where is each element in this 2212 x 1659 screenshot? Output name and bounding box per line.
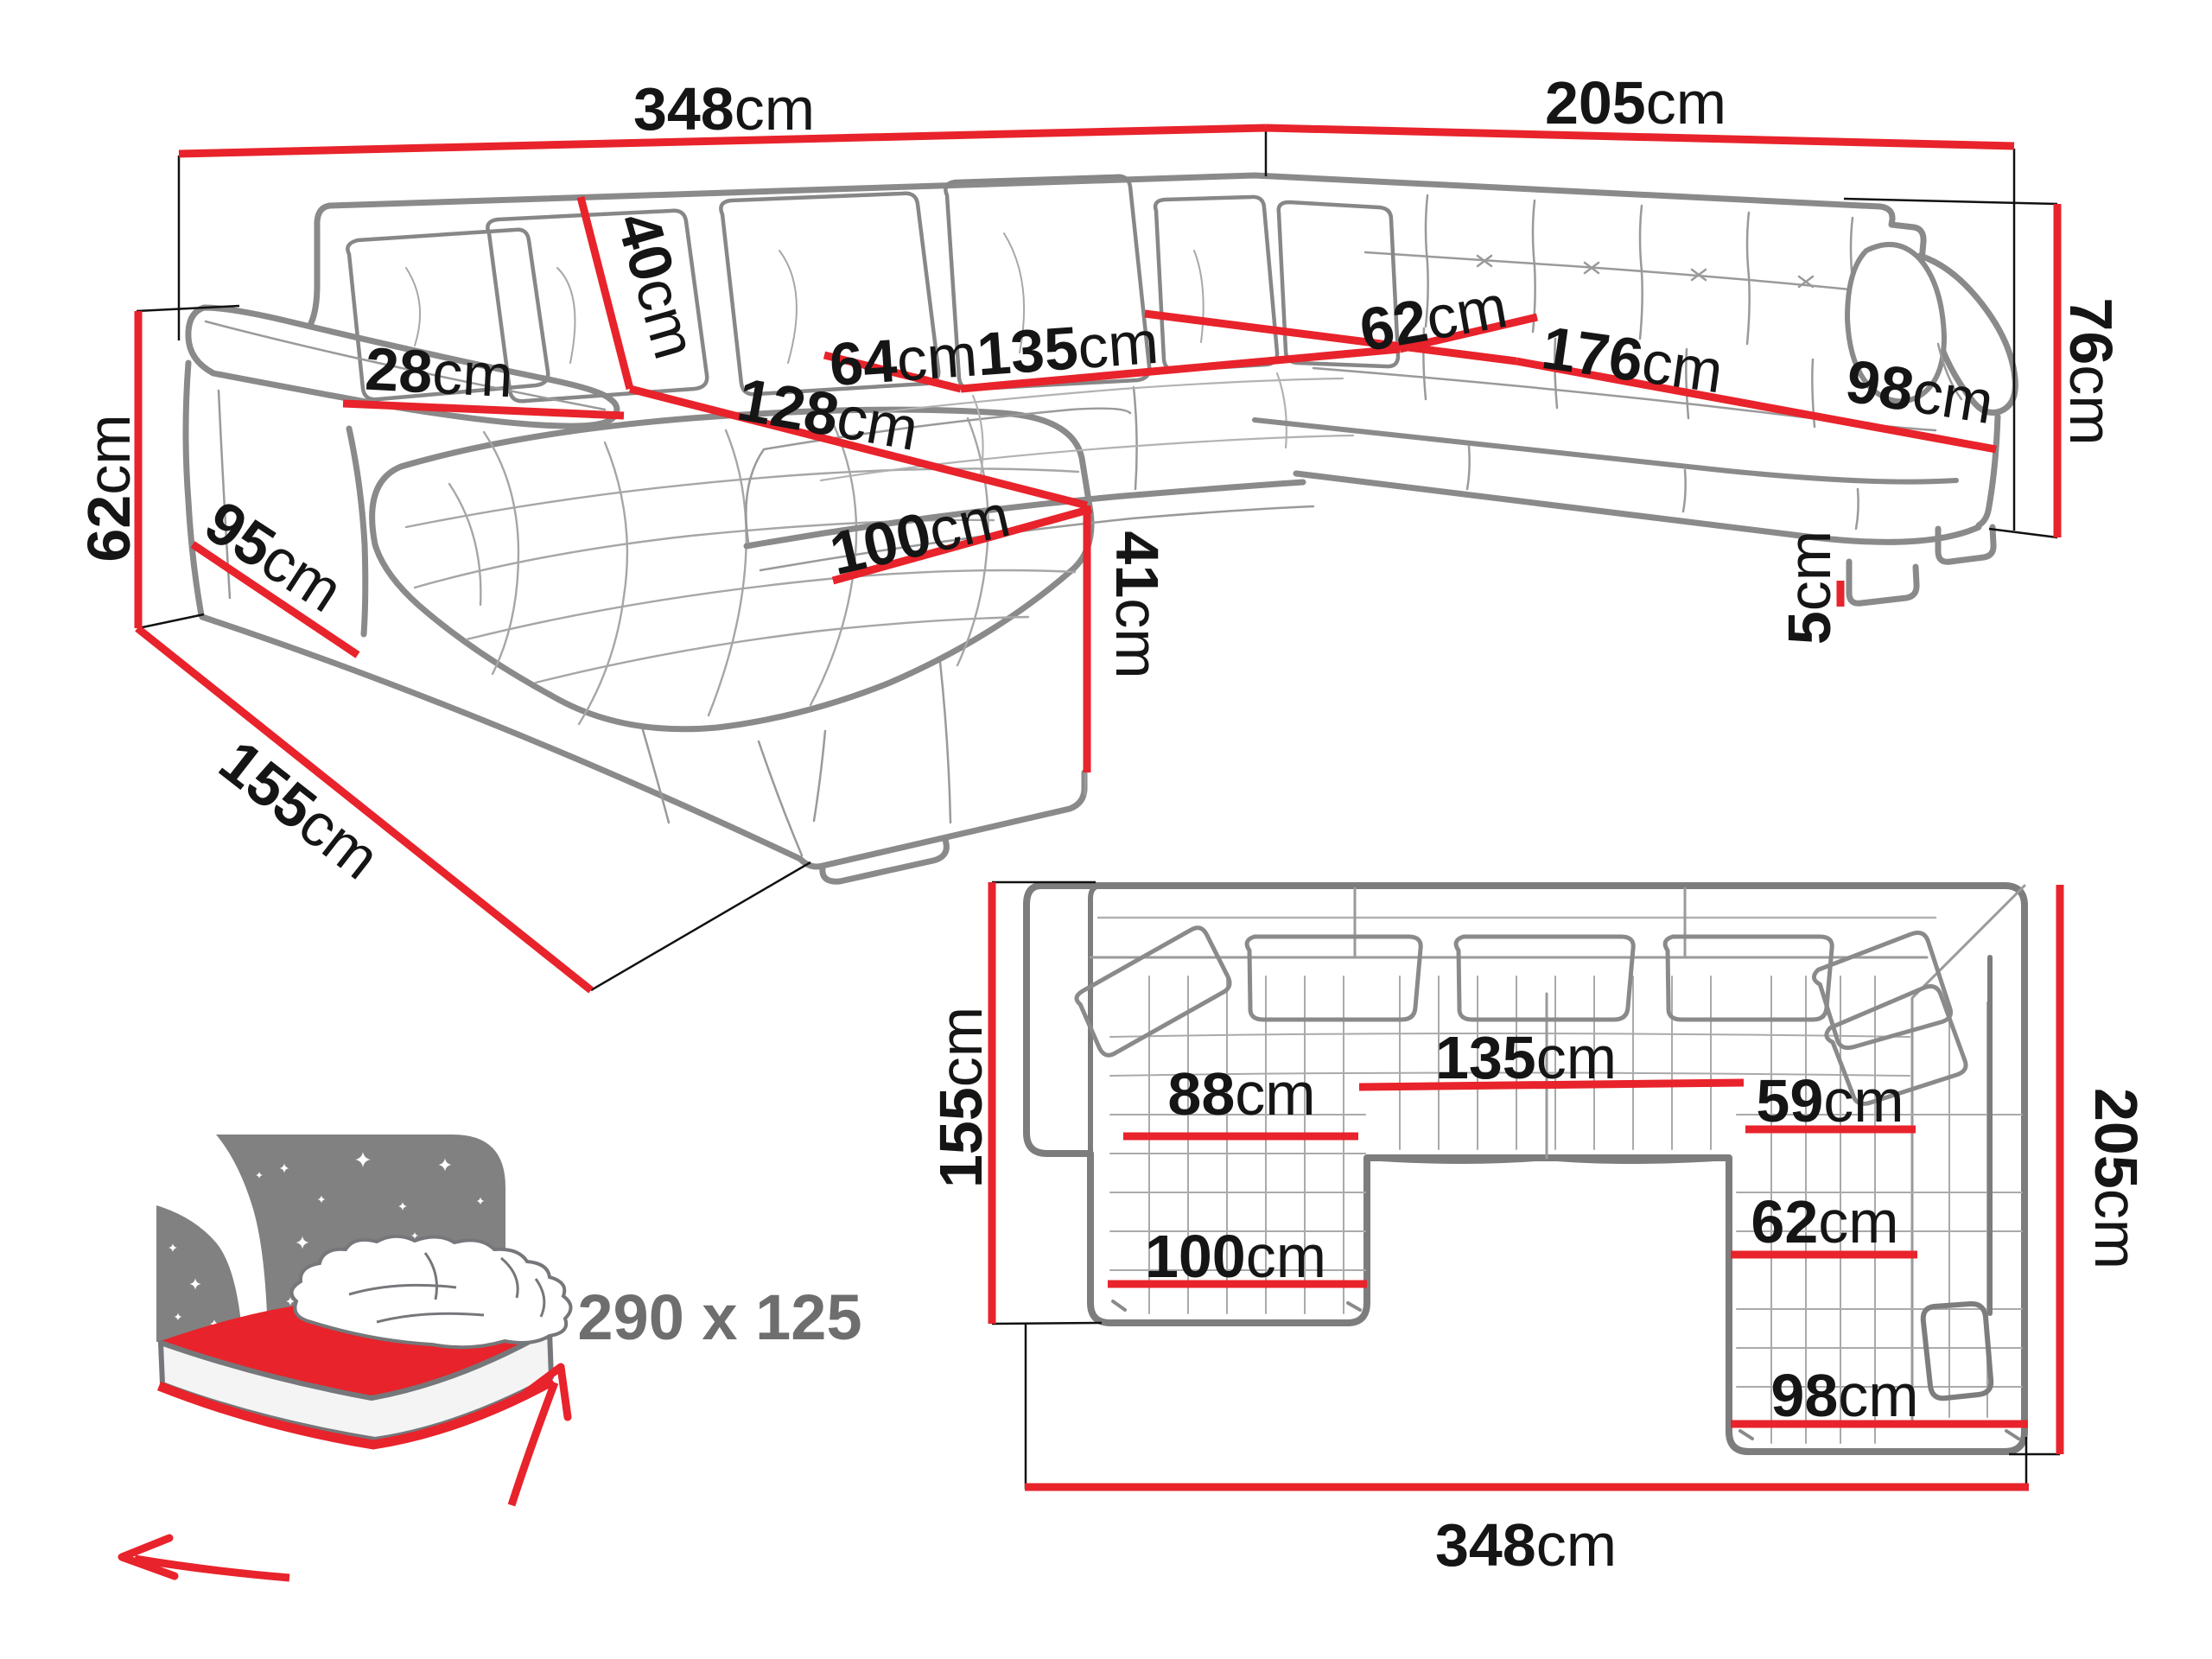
- svg-text:348cm: 348cm: [1435, 1511, 1617, 1579]
- svg-text:205cm: 205cm: [2082, 1088, 2150, 1269]
- svg-text:100cm: 100cm: [1145, 1223, 1326, 1290]
- svg-text:59cm: 59cm: [1756, 1067, 1904, 1135]
- svg-text:28cm: 28cm: [364, 335, 515, 410]
- svg-text:76cm: 76cm: [2057, 297, 2125, 445]
- svg-text:98cm: 98cm: [1770, 1362, 1918, 1429]
- svg-text:348cm: 348cm: [633, 75, 815, 143]
- svg-text:41cm: 41cm: [1103, 531, 1171, 678]
- svg-text:5cm: 5cm: [1776, 531, 1843, 645]
- svg-text:155cm: 155cm: [927, 1007, 995, 1188]
- svg-text:62cm: 62cm: [75, 414, 143, 562]
- svg-text:290 x 125: 290 x 125: [577, 1281, 861, 1353]
- svg-text:135cm: 135cm: [1435, 1024, 1617, 1091]
- svg-text:88cm: 88cm: [1167, 1060, 1315, 1128]
- svg-text:205cm: 205cm: [1545, 69, 1726, 137]
- svg-text:62cm: 62cm: [1751, 1188, 1898, 1255]
